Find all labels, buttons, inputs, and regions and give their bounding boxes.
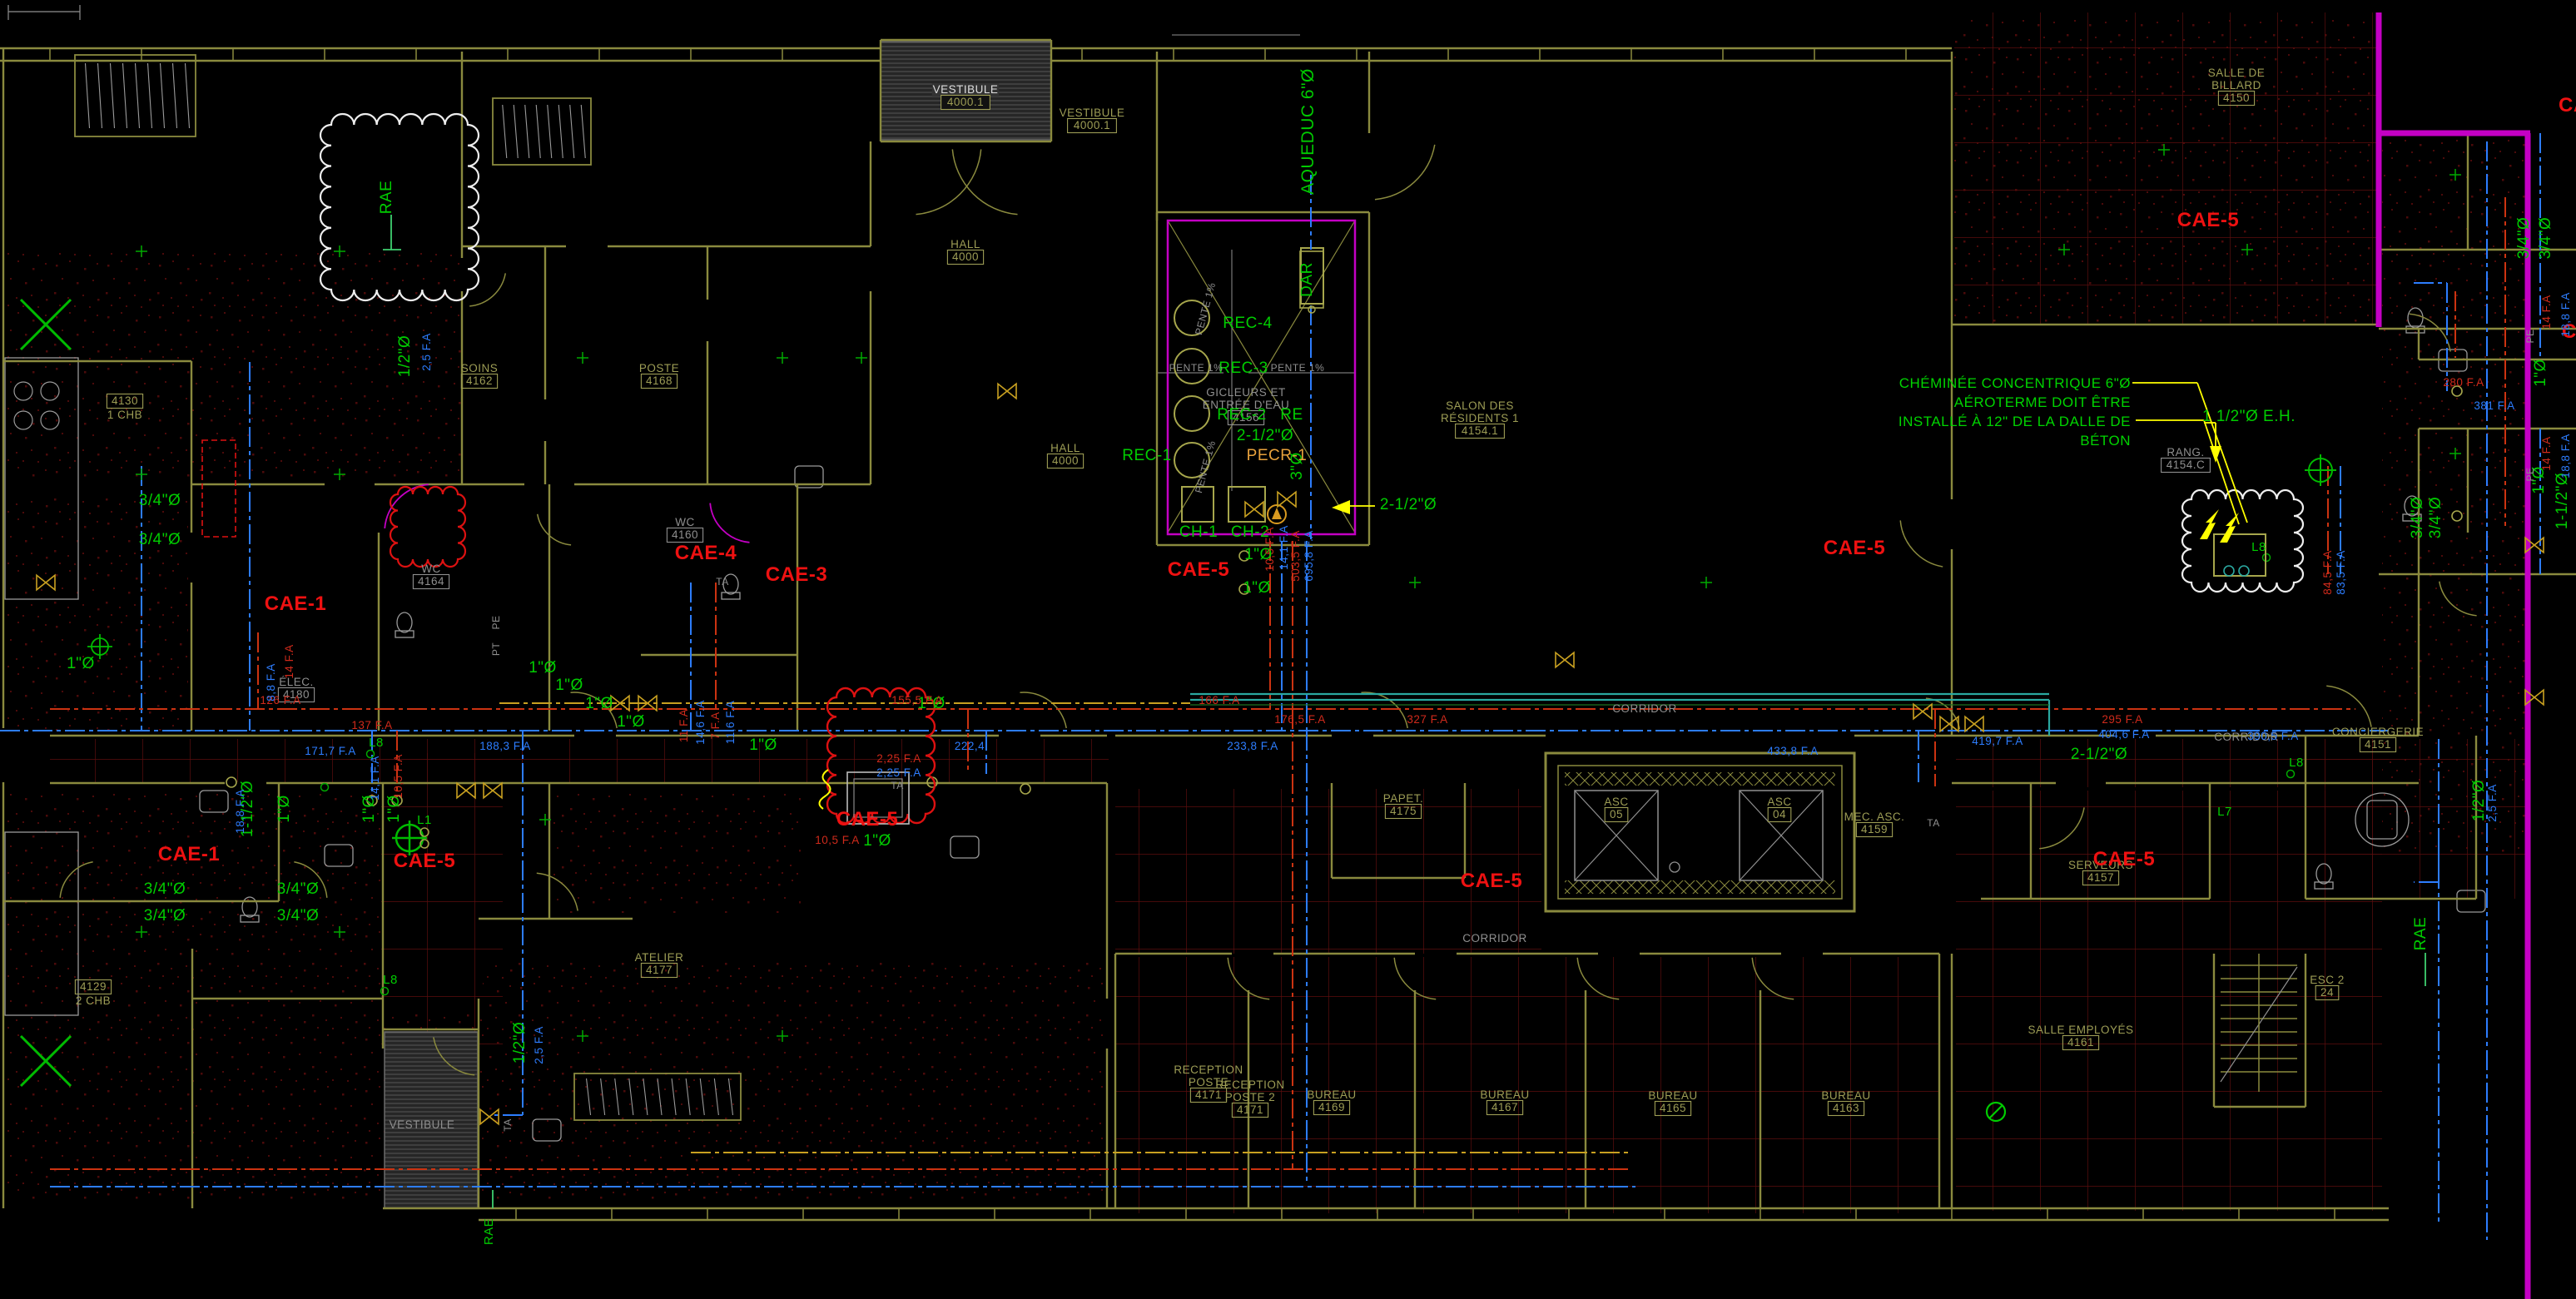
pipe-size-label: 1/2"Ø [396,335,414,377]
flow-value-label: 14 F.A [2540,295,2553,329]
room-number: 4168 [646,374,673,387]
equipment-tag: PECR-1 [1247,447,1308,464]
room-name: POSTE 2 [1225,1091,1276,1103]
equipment-tag: L8 [2251,540,2266,554]
pipe-size-label: 3/4"Ø [139,531,181,548]
room-number: 4171 [1237,1103,1263,1116]
pipe-size-label: 2-1/2"Ø [1237,427,1293,444]
room-name: WC [421,563,441,575]
room-name: VESTIBULE [390,1118,455,1131]
room-number: 4164 [418,575,444,588]
pipe-size-label: 1"Ø [275,795,293,823]
pipe-size-label: 1"Ø [529,659,557,677]
misc-label: PENTE 1% [1271,362,1325,374]
cad-viewport[interactable]: VESTIBULE4000.1VESTIBULE4000.1HALL4000HA… [0,0,2576,1299]
room-number: 4160 [672,528,698,541]
room-number: 4167 [1491,1101,1518,1113]
equipment-tag: CH-1 [1179,523,1218,541]
equipment-tag: RAE [2412,917,2430,951]
room-name: BUREAU [1648,1089,1697,1102]
room-number: 4000.1 [1074,119,1110,131]
pipe-size-label: 3/4"Ø [277,880,319,898]
flow-value-label: 10,5 F.A [392,754,405,799]
flow-value-label: 695,8 F.A [1303,530,1315,582]
equipment-tag: L8 [2289,756,2304,770]
flow-value-label: 222,4 [955,740,985,752]
flow-value-label: 18,8 F.A [2559,292,2572,337]
room-name: HALL [1050,442,1080,454]
flow-value-label: 14,6 F.A [694,700,707,745]
flow-value-label: 404,6 F.A [2098,728,2150,741]
room-name: BUREAU [1821,1089,1870,1102]
equipment-tag: RE [1280,406,1303,424]
equipment-tag: RAE [482,1218,496,1245]
note-text: BÉTON [2080,433,2131,449]
room-name: RANG. [2167,446,2204,459]
pipe-size-label: 1"Ø [749,736,777,754]
misc-label: TA [1927,817,1939,829]
equipment-tag: REC-4 [1223,315,1273,332]
flow-value-label: 18,8 F.A [2559,434,2572,478]
equipment-tag: L7 [2217,805,2232,819]
pipe-size-label: 1/2"Ø [511,1022,529,1063]
flow-value-label: 171,7 F.A [305,745,356,757]
room-name: ATELIER [635,951,684,964]
pipe-size-label: 1"Ø [2532,359,2549,387]
flow-value-label: 280 F.A [2443,376,2484,389]
room-name: SOINS [461,362,499,374]
equipment-tag: DAR [1298,262,1316,297]
room-number: 4161 [2067,1036,2094,1049]
pipe-size-label: 3/4"Ø [2409,497,2426,538]
room-name: PAPET. [1383,792,1424,805]
room-number: 4154.C [2167,459,2206,471]
room-name: RECEPTION [1174,1063,1243,1076]
room-name: POSTE [639,362,679,374]
flow-value-label: 176,5 F.A [1274,713,1326,726]
room-number: 05 [1610,808,1623,821]
cae-tag: CAE-4 [675,542,737,564]
room-name: ASC [1767,796,1791,808]
room-name: SALLE EMPLOYÉS [2028,1024,2133,1036]
pipe-size-label: 3/4"Ø [277,907,319,925]
misc-label: PE [2524,467,2536,481]
room-name: BUREAU [1480,1088,1529,1101]
pipe-size-label: 3/4"Ø [2515,217,2533,259]
room-number: 4150 [2223,92,2250,104]
flow-value-label: 2,25 F.A [876,752,921,765]
equipment-tag: L1 [417,813,432,827]
room-name: HALL [950,238,980,250]
misc-label: PT [490,642,502,657]
pipe-size-label: 1-1/2"Ø [2554,473,2571,529]
pipe-size-label: 3/4"Ø [139,492,181,509]
room-name: RÉSIDENTS 1 [1441,412,1519,424]
cae-tag: CAE-1 [158,843,221,865]
flow-value-label: 11 F.A [678,709,690,742]
room-number: 24 [2320,986,2334,999]
equipment-tag: REC-2 [1217,406,1267,424]
cae-tag: CAE-5 [1168,558,1230,581]
flow-value-label: 14,1 F.A [1278,525,1290,570]
note-text: INSTALLÉ À 12" DE LA DALLE DE [1898,414,2131,429]
room-number: 4159 [1861,823,1888,835]
flow-value-label: 2,5 F.A [2486,784,2499,822]
note-text: AÉROTERME DOIT ÊTRE [1954,394,2131,410]
room-number: 04 [1773,808,1786,821]
room-name: CORRIDOR [1612,702,1677,715]
flow-value-label: 14 F.A [2540,436,2553,470]
room-number: 4169 [1318,1101,1345,1113]
pipe-size-label: 1 1/2"Ø E.H. [2202,408,2296,425]
misc-label: PE [490,615,502,629]
flow-value-label: 2,25 F.A [876,766,921,779]
room-name: BILLARD [2211,79,2261,92]
flow-value-label: 166 F.A [1199,694,1239,707]
flow-value-label: 10,5 F.A [815,834,860,846]
flow-value-label: 7 F.A [709,711,722,739]
room-number: 4163 [1833,1102,1859,1114]
room-name: RECEPTION [1215,1078,1284,1091]
misc-label: PE [2524,329,2536,343]
room-number: 4177 [646,964,673,976]
note-text: CHÉMINÉE CONCENTRIQUE 6"Ø [1899,375,2131,391]
flow-value-label: 137 F.A [351,719,392,731]
room-name: ASC [1604,796,1628,808]
cae-tag: CAE-5 [2177,209,2240,231]
room-name: 2 CHB [76,994,111,1007]
room-number: 4000.1 [947,96,984,108]
pipe-size-label: AQUEDUC 6"Ø [1298,68,1318,195]
cae-tag: CAE-1 [265,592,327,615]
flow-value-label: 233,8 F.A [1227,740,1278,752]
room-name: CONCIERGERIE [2332,726,2424,738]
misc-label: PENTE 1% [1169,362,1223,374]
room-number: 4000 [1052,454,1079,467]
room-name: SALLE DE [2208,67,2266,79]
room-number: 4157 [2087,871,2114,884]
equipment-tag: REC-1 [1122,447,1172,464]
room-name: CORRIDOR [1462,932,1527,945]
flow-value-label: 381 F.A [2474,399,2514,412]
room-name: 1 CHB [107,409,142,421]
flow-value-label: 2,5 F.A [420,333,433,371]
flow-value-label: 14 F.A [283,644,295,678]
pipe-size-label: 1"Ø [585,695,613,712]
pipe-size-label: 1"Ø [555,677,583,694]
cae-tag: CAE-5 [2559,94,2576,117]
flow-value-label: 390,5 F.A [2247,730,2299,742]
room-number: 4151 [2365,738,2391,751]
pipe-size-label: 1"Ø [617,713,645,731]
pipe-size-label: 1"Ø [863,832,891,850]
flow-value-label: 188,3 F.A [479,740,531,752]
equipment-tag: REC-3 [1219,359,1268,377]
floor-plan-drawing[interactable]: VESTIBULE4000.1VESTIBULE4000.1HALL4000HA… [0,0,2576,1299]
room-name: VESTIBULE [933,83,999,96]
room-number: 4154.1 [1462,424,1498,437]
pipe-size-label: 1"Ø [1243,579,1271,597]
room-number: 4165 [1660,1102,1686,1114]
flow-value-label: 10,5 F.A [1263,527,1276,572]
pipe-size-label: 3/4"Ø [2427,497,2444,538]
flow-value-label: 155,5 F.A [891,694,943,707]
flow-value-label: 295 F.A [2102,713,2142,726]
flow-value-label: 419,7 F.A [1972,735,2023,747]
cae-tag: CAE-5 [1461,870,1523,892]
pipe-size-label: 3/4"Ø [144,907,186,925]
misc-label: TA [716,576,728,588]
flow-value-label: 84,5 F.A [2321,550,2334,595]
cae-tag: CAE-5 [1824,537,1886,559]
flow-value-label: 8,8 F.A [265,663,277,702]
room-name: BUREAU [1307,1088,1356,1101]
pipe-size-label: 2-1/2"Ø [1380,496,1437,513]
flow-value-label: 433,8 F.A [1767,745,1819,757]
equipment-tag: L8 [383,973,398,987]
equipment-tag: L8 [369,736,384,750]
flow-value-label: 11,6 F.A [724,701,737,745]
room-name: GICLEURS ET [1206,386,1286,399]
room-number: 4000 [952,250,979,263]
misc-label: TA [891,780,903,791]
room-name: SALON DES [1446,399,1514,412]
flow-value-label: 327 F.A [1407,713,1447,726]
cae-tag: CAE-5 [836,808,899,830]
cae-tag: CAE-5 [394,850,456,872]
room-name: MEC. ASC. [1844,811,1905,823]
pipe-size-label: 1"Ø [67,655,95,672]
misc-label: TA [502,1118,514,1131]
room-name: WC [675,516,695,528]
room-number: 4162 [466,374,493,387]
room-number: 4175 [1390,805,1417,817]
flow-value-label: 503,5 F.A [1289,530,1302,582]
pipe-size-label: 3/4"Ø [2537,217,2554,259]
room-number: 4130 [112,394,138,407]
flow-value-label: 14,1 F.A [369,756,381,801]
room-name: ESC 2 [2310,974,2345,986]
cae-tag: CAE-5 [2093,848,2156,870]
flow-value-label: 83,5 F.A [2335,550,2347,595]
pipe-size-label: 2-1/2"Ø [2071,746,2127,763]
pipe-size-label: 3/4"Ø [144,880,186,898]
room-number: 4129 [80,980,107,993]
flow-value-label: 2,5 F.A [533,1026,545,1064]
flow-value-label: 18,8 F.A [234,789,246,834]
cae-tag: CAE-3 [766,563,828,586]
pipe-size-label: 1/2"Ø [2470,780,2488,821]
equipment-tag: RAE [378,181,395,215]
room-name: VESTIBULE [1060,107,1125,119]
